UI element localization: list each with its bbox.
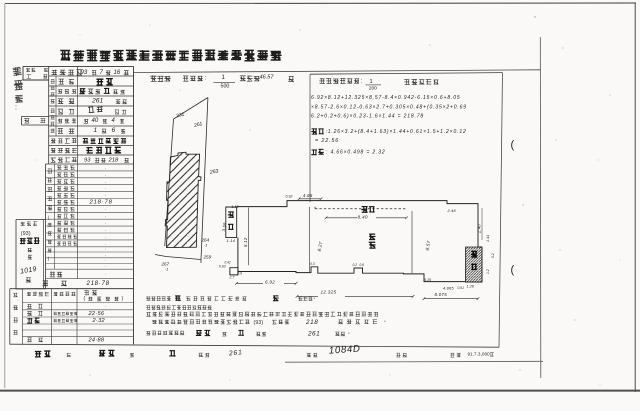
svg-text:·: · xyxy=(105,258,106,263)
svg-text:8.12: 8.12 xyxy=(243,237,248,247)
svg-text:(93): (93) xyxy=(254,320,264,326)
svg-text:93: 93 xyxy=(81,70,88,76)
svg-text:·: · xyxy=(105,242,106,247)
svg-text::: : xyxy=(361,79,363,85)
svg-text:·: · xyxy=(105,207,106,212)
svg-text:·: · xyxy=(105,252,106,257)
svg-text:·: · xyxy=(105,165,106,170)
svg-text:·: · xyxy=(105,172,106,177)
svg-text::: : xyxy=(15,105,17,112)
svg-text:·: · xyxy=(105,186,106,191)
svg-text:91.7.3,000: 91.7.3,000 xyxy=(468,351,491,356)
svg-text:46.57: 46.57 xyxy=(260,75,275,81)
svg-text:: 4.66×0.498 = 2.32: : 4.66×0.498 = 2.32 xyxy=(326,150,386,156)
svg-text:×8.57-2.6×0.12-0.63×2.7+0.305×: ×8.57-2.6×0.12-0.63×2.7+0.305×0.48+(0.35… xyxy=(311,104,467,110)
svg-text:500: 500 xyxy=(221,83,230,89)
svg-text:2.7: 2.7 xyxy=(229,275,235,279)
svg-text:200: 200 xyxy=(369,85,377,91)
svg-text:8.40: 8.40 xyxy=(358,215,368,220)
svg-text:218·78: 218·78 xyxy=(89,200,113,206)
svg-text:·: · xyxy=(105,264,106,269)
svg-text:261: 261 xyxy=(307,331,320,338)
svg-text:·: · xyxy=(105,179,106,184)
svg-text:1: 1 xyxy=(370,79,373,85)
svg-text:261: 261 xyxy=(193,121,204,129)
svg-text:4.865: 4.865 xyxy=(443,285,454,290)
svg-text:6.92: 6.92 xyxy=(265,280,275,285)
svg-text:0.9: 0.9 xyxy=(238,272,243,276)
svg-text:4: 4 xyxy=(112,118,116,124)
svg-text:2·32: 2·32 xyxy=(92,318,106,324)
svg-text:°: ° xyxy=(348,332,350,337)
svg-text:1.26: 1.26 xyxy=(467,284,475,288)
svg-text::: : xyxy=(205,76,207,82)
svg-text:218: 218 xyxy=(305,319,318,326)
svg-text:°: ° xyxy=(314,297,316,302)
svg-text:1: 1 xyxy=(222,75,226,81)
svg-text:12.325: 12.325 xyxy=(321,290,337,295)
svg-text:1019: 1019 xyxy=(20,266,38,276)
svg-text:-1: -1 xyxy=(165,268,168,272)
svg-text:0.42: 0.42 xyxy=(225,261,231,265)
svg-text:(: ( xyxy=(511,264,515,276)
svg-text:): ) xyxy=(48,256,50,261)
svg-text:6.15: 6.15 xyxy=(424,278,431,282)
svg-text:8.57: 8.57 xyxy=(425,240,432,251)
svg-text:267: 267 xyxy=(161,261,170,266)
svg-text:7: 7 xyxy=(100,70,104,76)
svg-text:8.27: 8.27 xyxy=(317,241,324,252)
svg-text:2.40: 2.40 xyxy=(476,224,481,234)
svg-text:1.2: 1.2 xyxy=(486,269,490,274)
svg-text:·: · xyxy=(105,271,106,276)
svg-text:·: · xyxy=(105,221,106,226)
svg-text:6: 6 xyxy=(112,127,116,134)
svg-text:3.59: 3.59 xyxy=(221,222,227,232)
svg-text:16: 16 xyxy=(114,70,121,76)
svg-text:0.2: 0.2 xyxy=(353,263,358,267)
svg-text:40: 40 xyxy=(92,118,99,124)
svg-text:(: ( xyxy=(84,296,86,302)
svg-text:331: 331 xyxy=(176,112,186,120)
svg-text:263: 263 xyxy=(209,169,220,176)
svg-text:4.66: 4.66 xyxy=(303,193,313,198)
svg-text:0.6: 0.6 xyxy=(360,263,365,267)
svg-text:24·88: 24·88 xyxy=(88,338,105,344)
svg-text:(93): (93) xyxy=(21,231,31,237)
svg-text:0.63: 0.63 xyxy=(219,264,226,268)
svg-text:22·56: 22·56 xyxy=(88,311,105,317)
svg-text:1.14: 1.14 xyxy=(227,238,236,243)
svg-text:·: · xyxy=(105,228,106,233)
svg-text:2.46: 2.46 xyxy=(447,208,457,213)
svg-text:218·78: 218·78 xyxy=(86,280,110,287)
svg-text:261: 261 xyxy=(91,97,104,104)
svg-text:6.92×8.12+12.325×8.57-8.4×0.94: 6.92×8.12+12.325×8.57-8.4×0.942-6.15×0.6… xyxy=(311,95,460,101)
svg-text:1.63: 1.63 xyxy=(232,205,239,209)
svg-text:·: · xyxy=(105,235,106,240)
svg-text:8.075: 8.075 xyxy=(435,292,448,297)
svg-text:°: ° xyxy=(384,320,386,325)
svg-text:(: ( xyxy=(511,139,515,151)
svg-text:1084D: 1084D xyxy=(328,343,360,356)
svg-text:264: 264 xyxy=(201,237,210,242)
svg-text:6.2+0.2+0.6)×0.23-1.6×1.44 = 2: 6.2+0.2+0.6)×0.23-1.6×1.44 = 218.78 xyxy=(311,114,424,120)
svg-text:·: · xyxy=(105,193,106,198)
svg-text:261: 261 xyxy=(228,349,243,358)
svg-text:259: 259 xyxy=(203,254,212,259)
svg-text:= 22.56: = 22.56 xyxy=(315,138,339,144)
svg-text:): ) xyxy=(122,296,124,302)
svg-text:93: 93 xyxy=(84,158,91,164)
svg-text:1.44: 1.44 xyxy=(486,235,490,242)
svg-text:0.3: 0.3 xyxy=(310,262,315,266)
svg-text:0.61: 0.61 xyxy=(458,286,465,290)
svg-text:218: 218 xyxy=(108,158,119,164)
svg-text:0.92: 0.92 xyxy=(286,195,293,199)
svg-text:·: · xyxy=(105,214,106,219)
svg-text:0.2: 0.2 xyxy=(491,253,495,258)
svg-text:1: 1 xyxy=(94,127,98,134)
svg-text:·: · xyxy=(105,304,106,309)
svg-text:-1: -1 xyxy=(204,244,207,248)
svg-text::1.26×3.2+(8.4+1.63)×1.44+0.61: :1.26×3.2+(8.4+1.63)×1.44+0.61×1.5+1.2×0… xyxy=(326,129,467,135)
